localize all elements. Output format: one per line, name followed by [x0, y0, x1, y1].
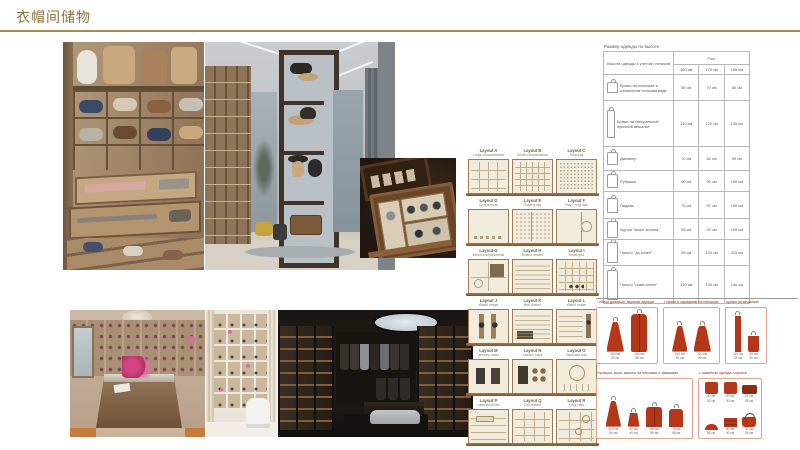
hanging-garment [360, 344, 369, 370]
garment-cell: Рубашка [604, 171, 674, 192]
drawer-wood-base [510, 443, 555, 446]
layout-subtitle: Divided tray [512, 204, 553, 208]
drawer-wood-base [554, 393, 599, 396]
garment-silhouette-icon [724, 418, 737, 427]
hanging-garment [370, 344, 379, 370]
garment-name: Пиджак [620, 203, 634, 208]
shoe [79, 128, 103, 141]
layout-module: Layout I Small grid [556, 249, 597, 294]
garment-cell: Брюки на плечиках в сложенном пополам ви… [604, 75, 674, 101]
drawer-pattern [559, 262, 594, 291]
hanging-garment [400, 344, 409, 370]
drawer-wood-base [466, 443, 511, 446]
garment-box-dresses: Платья и сарафаны на плечиках 110 см 50 … [663, 301, 720, 364]
layout-module: Layout M Jewelry cases [468, 349, 509, 394]
drawer-diagram [468, 309, 509, 344]
layout-module: Layout R Ring cells [556, 399, 597, 444]
pouf [255, 222, 273, 236]
photo-watch-drawer [360, 158, 456, 258]
hat [298, 73, 318, 81]
drawer-pattern [559, 412, 594, 441]
garment-figure: 30 см 40 см [721, 418, 739, 436]
tower-shelf [284, 151, 324, 155]
petal [220, 388, 223, 391]
table-row: Брюки на плечиках в сложенном пополам ви… [604, 75, 750, 101]
layout-subtitle: Belt drawer [512, 304, 553, 308]
layout-subtitle: Cell drawer [512, 404, 553, 408]
size-value-cell: 105 см [724, 219, 749, 240]
garment-outline-icon [607, 110, 615, 138]
drawer-pattern [515, 362, 550, 391]
size-value-cell: 95 см [674, 240, 699, 266]
layout-caption: Layout J Watch straps [468, 299, 509, 308]
garment-box-folded: Сложенная одежда, коробки 40 см 30 см [698, 372, 762, 439]
drawer-pattern [559, 162, 594, 191]
drawer-pattern [471, 262, 506, 291]
garment-width-label: 55 см [672, 432, 680, 436]
drawer-pattern [515, 312, 550, 341]
drawer-wood-base [466, 293, 511, 296]
garment-outline-icon [607, 152, 618, 165]
table-row: Джемпер 70 см 80 см 90 см [604, 147, 750, 171]
garment-figure: 110 см 25 см [733, 311, 743, 361]
garment-width-label: 35 см [745, 400, 753, 404]
floor [70, 428, 96, 437]
garment-figure: 140 см 50 см [607, 317, 624, 361]
hanger-hook-icon [735, 311, 740, 315]
wood-shelving [205, 66, 251, 244]
garment-name: Джемпер [620, 156, 637, 161]
row-header-label: Высота одежды с учетом плечиков [604, 52, 674, 75]
layout-module: Layout F Tray + ring dish [556, 199, 597, 244]
handbag [103, 46, 135, 84]
throw-blanket [370, 410, 420, 424]
table-row: Пальто "до колен" 95 см 103 см 115 см [604, 240, 750, 266]
garment-silhouette-icon [705, 424, 718, 430]
garment-dimension-section: Платья длинные, верхняя одежда 140 см 50… [596, 301, 800, 447]
garment-width-label: 40 см [629, 432, 637, 436]
layout-caption: Layout A Large compartments [468, 149, 509, 158]
drawer-wood-base [510, 243, 555, 246]
size-value-cell: 103 см [699, 240, 724, 266]
garment-cell: Джемпер [604, 147, 674, 171]
garment-cell: Пиджак [604, 192, 674, 219]
garment-box-frame: 110 см 50 см 60 см 40 см [596, 378, 693, 439]
garment-width-label: 30 см [726, 400, 734, 404]
layout-module: Layout N Leather trays [512, 349, 553, 394]
garment-silhouette-icon [748, 336, 759, 352]
drawer-pattern [559, 312, 594, 341]
size-value-cell: 87 см [699, 192, 724, 219]
hanging-garment [380, 344, 389, 370]
drawer-wood-base [466, 343, 511, 346]
height-column-header: 170 см [699, 65, 724, 75]
garment-silhouette-icon [742, 417, 756, 427]
drawer-diagram [468, 159, 509, 194]
drawer-diagram [512, 359, 553, 394]
garment-figure: 160 см 55 см [631, 309, 647, 361]
mannequin-head [292, 161, 304, 177]
height-column-header: 180 см [724, 65, 749, 75]
layout-subtitle: Small grid [556, 254, 597, 258]
garment-width-label: 25 см [734, 357, 742, 361]
floor [96, 428, 185, 437]
drawer-diagram [512, 159, 553, 194]
garment-box-frame: 140 см 50 см 160 см 55 см [596, 307, 658, 364]
hanging-garment [388, 378, 398, 400]
photo-shoe-wardrobe [63, 42, 204, 270]
height-column-header: 160 см [674, 65, 699, 75]
drawer-pattern [471, 212, 506, 241]
garment-width-label: 30 см [707, 400, 715, 404]
hanger-hook-icon [652, 402, 657, 406]
drawer-wood-base [510, 343, 555, 346]
layout-caption: Layout M Jewelry cases [468, 349, 509, 358]
layout-caption: Layout L Watch holder [556, 299, 597, 308]
hat-display-tower [279, 50, 339, 268]
drawer-diagram [512, 309, 553, 344]
chair [246, 398, 270, 428]
shoe [113, 126, 137, 139]
garment-figure: 40 см 30 см [702, 382, 720, 403]
drawer-diagram [512, 409, 553, 444]
garment-figure: 25 см 35 см [740, 385, 758, 403]
petal [246, 364, 250, 368]
drawer-diagram [556, 259, 597, 294]
garment-silhouette-icon [724, 382, 737, 394]
layout-module: Layout H Slotted drawer [512, 249, 553, 294]
layout-caption: Layout K Belt drawer [512, 299, 553, 308]
size-value-cell: 100 см [724, 192, 749, 219]
garment-name: Пальто "ниже колен" [620, 282, 657, 287]
garment-silhouette-icon [735, 316, 741, 352]
garment-name: Рубашка [620, 179, 636, 184]
garment-name: Брюки на плечиках в сложенном пополам ви… [620, 83, 672, 93]
layout-subtitle: Large compartments [468, 154, 509, 158]
drawer-contents [77, 214, 157, 223]
tower-shelf [284, 201, 324, 205]
garment-silhouette-icon [705, 382, 718, 394]
garment-box-title: Рубашки, юбки, жакеты на плечиках с зажи… [597, 372, 693, 377]
garment-silhouette-icon [694, 326, 711, 352]
garment-width-label: 50 см [676, 357, 684, 361]
drawer-contents [169, 209, 191, 222]
shoe [83, 242, 103, 252]
drawer-wood-base [554, 343, 599, 346]
layout-caption: Layout Q Cell drawer [512, 399, 553, 408]
layout-caption: Layout H Slotted drawer [512, 249, 553, 258]
drawer-pattern [559, 212, 594, 241]
garment-width-label: 30 см [749, 357, 757, 361]
drawer-wood-base [466, 243, 511, 246]
layout-module: Layout O Necklace tray [556, 349, 597, 394]
pink-accent [186, 336, 196, 344]
handbag [171, 47, 197, 84]
hanger-hook-icon [674, 404, 679, 408]
hanger-hook-icon [677, 321, 682, 325]
garment-silhouette-icon [669, 409, 683, 427]
section-divider [596, 298, 798, 299]
layout-caption: Layout B Small compartments [512, 149, 553, 158]
garment-silhouette-icon [628, 413, 640, 427]
layout-subtitle: Labeled boxes [468, 404, 509, 408]
drawer-diagram [556, 209, 597, 244]
garment-figure: 55 см [702, 424, 720, 436]
drawer-wood-base [466, 193, 511, 196]
layout-caption: Layout F Tray + ring dish [556, 199, 597, 208]
drawer-wood-base [510, 193, 555, 196]
drawer-pattern [471, 412, 506, 441]
size-value-cell: 70 см [699, 75, 724, 101]
layout-module: Layout B Small compartments [512, 149, 553, 194]
drawer-pattern [515, 262, 550, 291]
layout-subtitle: Leather trays [512, 354, 553, 358]
drawer-pattern [471, 312, 506, 341]
hanger-hook-icon [613, 317, 618, 321]
layout-subtitle: Ring cells [556, 404, 597, 408]
drawer-diagram [512, 209, 553, 244]
hanger-hook-icon [631, 408, 636, 412]
layout-subtitle: Mixed compartments [468, 254, 509, 258]
layout-subtitle: Small compartments [512, 154, 553, 158]
page-title: 衣帽间储物 [16, 7, 91, 27]
garment-silhouette-icon [606, 401, 621, 427]
shoe [179, 126, 203, 139]
size-value-cell: 80 см [699, 147, 724, 171]
layout-module: Layout E Divided tray [512, 199, 553, 244]
drawer-diagram [512, 259, 553, 294]
drawer-pattern [559, 362, 594, 391]
garment-width-label: 40 см [726, 432, 734, 436]
table-row: Рубашка 80 см 90 см 100 см [604, 171, 750, 192]
layout-module: Layout J Watch straps [468, 299, 509, 344]
box-shelf-unit [214, 314, 267, 410]
drawer-diagram [556, 309, 597, 344]
size-value-cell: 70 см [674, 147, 699, 171]
layout-module: Layout Q Cell drawer [512, 399, 553, 444]
layout-caption: Layout I Small grid [556, 249, 597, 258]
garment-box-title: Платья и сарафаны на плечиках [664, 301, 720, 306]
layout-caption: Layout N Leather trays [512, 349, 553, 358]
photo-island-closet [70, 310, 205, 437]
flower-bouquet [122, 356, 150, 378]
layout-caption: Layout E Divided tray [512, 199, 553, 208]
garment-cell: Брюки на специальной брючной вешалке [604, 101, 674, 147]
layout-subtitle: Necklace tray [556, 354, 597, 358]
shoe [123, 246, 143, 256]
garment-silhouette-icon [742, 385, 757, 394]
size-value-cell: 75 см [674, 192, 699, 219]
wardrobe-unit [278, 326, 334, 430]
layout-subtitle: Ring tray [556, 154, 597, 158]
drawer-pattern [515, 162, 550, 191]
open-drawer [75, 171, 197, 205]
title-underline [0, 30, 800, 32]
size-value-cell: 65 см [674, 75, 699, 101]
garment-figure: 110 см 50 см [672, 321, 687, 361]
hanging-garment [376, 378, 386, 400]
drawer-diagram [556, 359, 597, 394]
hanger-hook-icon [611, 396, 616, 400]
garment-cell: Пальто "до колен" [604, 240, 674, 266]
table-header-row: Высота одежды с учетом плечиков Рост [604, 52, 750, 65]
table-row: Брюки на специальной брючной вешалке 110… [604, 101, 750, 147]
floor [185, 428, 205, 437]
drawer-diagram [556, 159, 597, 194]
drawer-pattern [515, 412, 550, 441]
garment-name: Куртка "выше колена" [620, 227, 660, 232]
layout-caption: Layout P Labeled boxes [468, 399, 509, 408]
garment-outline-icon [607, 198, 618, 213]
closet-layout-grid: Layout A Large compartments Layout B Sma… [468, 149, 601, 444]
closet-island [96, 374, 182, 428]
drawer-diagram [468, 359, 509, 394]
watch-row [370, 168, 417, 188]
size-table-grid: Высота одежды с учетом плечиков Рост 160… [603, 51, 750, 304]
size-value-cell: 115 см [724, 240, 749, 266]
garment-figure: 110 см 50 см [606, 396, 621, 436]
garment-silhouette-icon [646, 407, 662, 427]
drawer-pattern [471, 362, 506, 391]
layout-subtitle: Watch holder [556, 304, 597, 308]
table-row: Пиджак 75 см 87 см 100 см [604, 192, 750, 219]
drawer-wood-base [554, 243, 599, 246]
size-value-cell: 90 см [699, 171, 724, 192]
size-value-cell: 80 см [674, 171, 699, 192]
size-value-cell: 85 см [674, 219, 699, 240]
tower-shelf [284, 101, 324, 105]
drawer-diagram [556, 409, 597, 444]
photo-box-shelves [206, 310, 277, 437]
drawer-wood-base [554, 443, 599, 446]
garment-figure: 65 см 30 см [748, 331, 759, 361]
layout-module: Layout C Ring tray [556, 149, 597, 194]
petal [228, 330, 232, 334]
layout-caption: Layout R Ring cells [556, 399, 597, 408]
garment-outline-icon [607, 82, 618, 93]
garment-width-label: 55 см [635, 357, 643, 361]
layout-module: Layout A Large compartments [468, 149, 509, 194]
garment-silhouette-icon [631, 314, 647, 352]
window [333, 90, 363, 232]
size-value-cell: 80 см [724, 75, 749, 101]
clothing-size-table: Размер одежды по высоте Высота одежды с … [603, 44, 750, 304]
layout-module: Layout K Belt drawer [512, 299, 553, 344]
vase [77, 50, 97, 84]
layout-caption: Layout O Necklace tray [556, 349, 597, 358]
drawer-wood-base [554, 293, 599, 296]
layout-module: Layout P Labeled boxes [468, 399, 509, 444]
drawer-wood-base [466, 393, 511, 396]
layout-subtitle: Tray + ring dish [556, 204, 597, 208]
drawer-diagram [468, 409, 509, 444]
layout-module: Layout G Mixed compartments [468, 249, 509, 294]
drawer-pattern [471, 162, 506, 191]
hanging-garment [340, 344, 349, 370]
layout-caption: Layout C Ring tray [556, 149, 597, 158]
hat [300, 107, 316, 119]
layout-module: Layout D Covered tray [468, 199, 509, 244]
size-value-cell: 100 см [724, 171, 749, 192]
shoe [179, 98, 203, 111]
drawer-wood-base [554, 193, 599, 196]
hanging-garment [350, 344, 359, 370]
curtain [206, 310, 214, 437]
garment-figure: 80 см 55 см [646, 402, 662, 436]
hanging-garment [400, 378, 410, 400]
drawer-wood-base [510, 393, 555, 396]
garment-box-frame: 40 см 30 см 40 см 30 см [698, 378, 762, 439]
garment-box-trousers: Брюки на вешалках 110 см 25 см [725, 301, 767, 364]
drawer-wood-base [510, 293, 555, 296]
table-title: Размер одежды по высоте [604, 44, 750, 49]
rug [245, 246, 355, 258]
garment-name: Брюки на специальной брючной вешалке [617, 119, 672, 129]
bag [273, 224, 287, 240]
hat [308, 159, 322, 177]
hanger-hook-icon [637, 309, 642, 313]
garment-box-title: Сложенная одежда, коробки [699, 372, 762, 377]
table-row: Куртка "выше колена" 85 см 92 см 105 см [604, 219, 750, 240]
garment-width-label: 55 см [707, 432, 715, 436]
column-group-label: Рост [674, 52, 750, 65]
garment-width-label: 35 см [745, 432, 753, 436]
drawer-contents [85, 182, 145, 193]
garment-cell: Куртка "выше колена" [604, 219, 674, 240]
garment-name: Пальто "до колен" [620, 250, 653, 255]
size-value-cell: 135 см [724, 101, 749, 147]
garment-width-label: 55 см [650, 432, 658, 436]
size-value-cell: 110 см [674, 101, 699, 147]
garment-figure: 40 см 30 см [721, 382, 739, 403]
open-drawer [69, 201, 201, 240]
garment-box-title: Брюки на вешалках [726, 301, 767, 306]
shoe [147, 100, 171, 113]
garment-figure: 60 см 40 см [628, 408, 640, 436]
garment-outline-icon [607, 242, 618, 263]
garment-silhouette-icon [607, 322, 624, 352]
layout-module: Layout L Watch holder [556, 299, 597, 344]
drawer-pattern [515, 212, 550, 241]
suitcase [290, 215, 322, 235]
hanging-garment [390, 344, 399, 370]
slide-canvas: 衣帽间储物 [0, 0, 800, 450]
garment-figure: 110 см 55 см [694, 321, 711, 361]
garment-width-label: 55 см [698, 357, 706, 361]
layout-subtitle: Slotted drawer [512, 254, 553, 258]
layout-subtitle: Watch straps [468, 304, 509, 308]
photo-dark-walkin [278, 310, 473, 437]
layout-subtitle: Jewelry cases [468, 354, 509, 358]
garment-outline-icon [607, 221, 618, 238]
garment-silhouette-icon [672, 326, 687, 352]
garment-box-frame: 110 см 50 см 110 см 55 см [663, 307, 720, 364]
garment-width-label: 50 см [611, 357, 619, 361]
garment-outline-icon [607, 174, 618, 188]
shoe [79, 100, 103, 113]
mirror [72, 326, 94, 378]
garment-box-title: Платья длинные, верхняя одежда [597, 301, 658, 306]
size-value-cell: 120 см [699, 101, 724, 147]
garment-width-label: 50 см [609, 432, 617, 436]
shoe [163, 250, 183, 260]
garment-figure: 30 см 35 см [740, 417, 758, 436]
garment-figure: 75 см 55 см [669, 404, 683, 436]
garment-outline-icon [607, 270, 618, 300]
handbag [141, 50, 167, 84]
shoe [113, 98, 137, 111]
shoe [147, 128, 171, 141]
